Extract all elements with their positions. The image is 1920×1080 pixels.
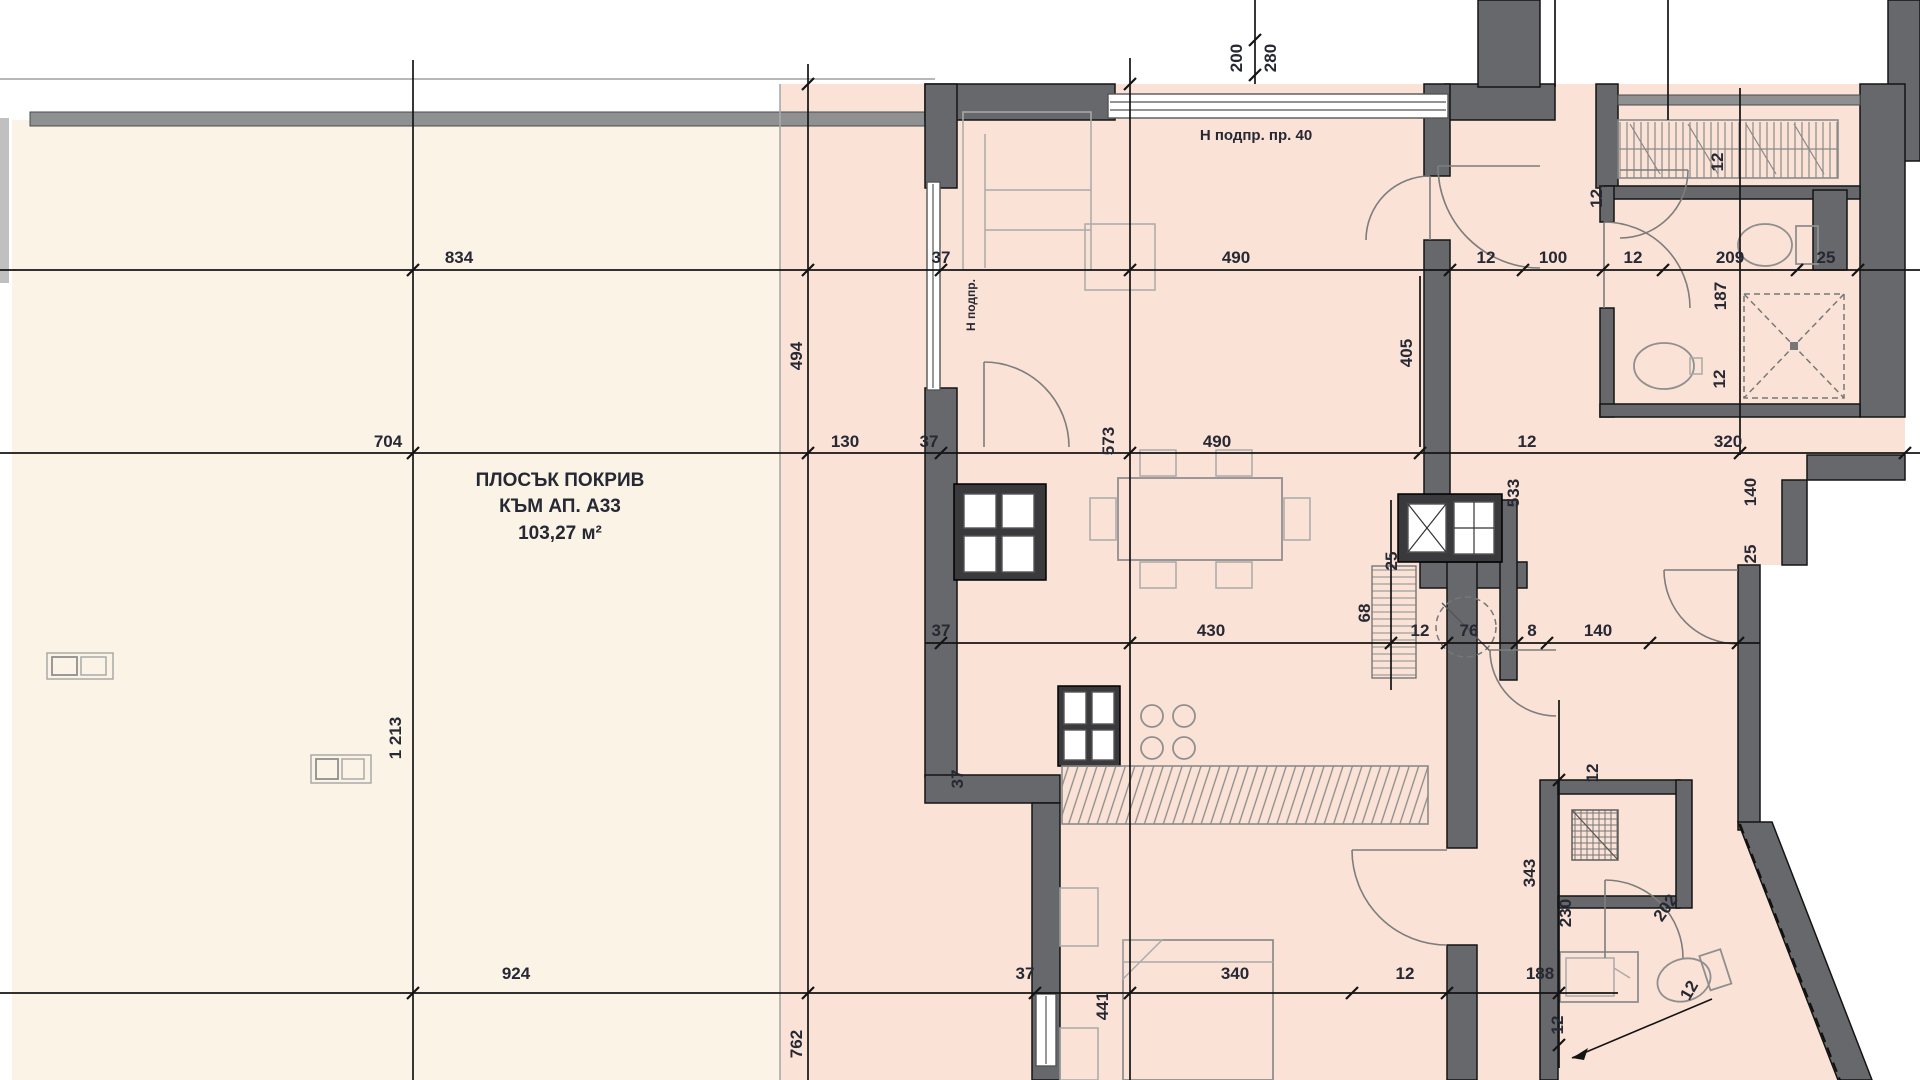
dimension-label: 490 — [1222, 248, 1250, 267]
dimension-label: 280 — [1261, 44, 1280, 72]
kitchen-counter — [1062, 766, 1428, 824]
dimension-label: 834 — [445, 248, 474, 267]
dimension-label: 25 — [1382, 552, 1401, 571]
dimension-label: 12 — [1710, 370, 1729, 389]
roof-label-area: 103,27 м² — [518, 523, 602, 544]
dimension-label: 37 — [932, 621, 951, 640]
dimension-label: 12, — [1587, 184, 1606, 208]
dimension-label: 343 — [1520, 859, 1539, 887]
window — [927, 182, 940, 390]
left-neighbor-edge — [0, 118, 9, 283]
dimension-label: 704 — [374, 432, 403, 451]
dimension-label: 430 — [1197, 621, 1225, 640]
dimension-label: 140 — [1741, 478, 1760, 506]
dimension-label: 37 — [948, 770, 967, 789]
ceiling-note: Н подпр. пр. 40 — [1200, 127, 1312, 144]
dimension-label: 12 — [1477, 248, 1496, 267]
stove-unit — [1058, 686, 1120, 766]
washbasin-unit — [1572, 810, 1618, 860]
dimension-label: 37 — [1016, 964, 1035, 983]
window — [1036, 994, 1056, 1066]
roof-label-line1: ПЛОСЪК ПОКРИВ — [476, 470, 645, 491]
dimension-label: 37 — [920, 432, 939, 451]
dimension-label: 130 — [831, 432, 859, 451]
dimension-label: 12 — [1396, 964, 1415, 983]
dimension-label: 209 — [1716, 248, 1744, 267]
dimension-label: 320 — [1714, 432, 1742, 451]
dimension-label: 25 — [1817, 248, 1836, 267]
dimension-label: 12 — [1624, 248, 1643, 267]
dimension-label: 230 — [1556, 899, 1575, 927]
dimension-label: 924 — [502, 964, 531, 983]
dimension-label: 37 — [932, 248, 951, 267]
parapet-wall — [30, 112, 925, 126]
dimension-label: 8 — [1527, 621, 1536, 640]
dimension-label: 340 — [1221, 964, 1249, 983]
dimension-label: 12 — [1518, 432, 1537, 451]
dimension-label: 1 213 — [386, 717, 405, 760]
roof-label-line2: КЪМ АП. А33 — [499, 496, 621, 517]
dimension-label: 762 — [787, 1030, 806, 1058]
dimension-label: 100 — [1539, 248, 1567, 267]
dimension-label: 140 — [1584, 621, 1612, 640]
dimension-label: 12 — [1708, 153, 1727, 172]
window — [1108, 94, 1448, 118]
terrace-strip — [780, 84, 925, 1080]
dimension-label: 494 — [787, 341, 806, 370]
dimension-label: 405 — [1397, 339, 1416, 367]
roof-area — [12, 120, 780, 1080]
dimension-label: 490 — [1203, 432, 1231, 451]
dimension-label: 533 — [1504, 479, 1523, 507]
dimension-label: 12 — [1411, 621, 1430, 640]
dimension-label: 441 — [1093, 992, 1112, 1020]
dimension-label: 68 — [1355, 604, 1374, 623]
ventilation-niche — [1372, 566, 1416, 678]
floor-plan-page: ПЛОСЪК ПОКРИВ КЪМ АП. А33 103,27 м² Н по… — [0, 0, 1920, 1080]
dimension-label: 573 — [1099, 427, 1118, 455]
dimension-label: 12 — [1583, 764, 1602, 783]
dimension-label: 188 — [1526, 964, 1554, 983]
floor-plan-drawing: ПЛОСЪК ПОКРИВ КЪМ АП. А33 103,27 м² Н по… — [0, 0, 1920, 1080]
dimension-label: 200 — [1227, 44, 1246, 72]
tv-unit-shaft — [954, 484, 1046, 580]
wall-note: Н подпр. — [964, 279, 978, 331]
dimension-label: 12 — [1548, 1016, 1567, 1035]
kitchen-shaft — [1398, 494, 1502, 562]
dimension-label: 187 — [1711, 282, 1730, 310]
dimension-label: 25 — [1741, 545, 1760, 564]
dimension-label: 76 — [1460, 621, 1479, 640]
